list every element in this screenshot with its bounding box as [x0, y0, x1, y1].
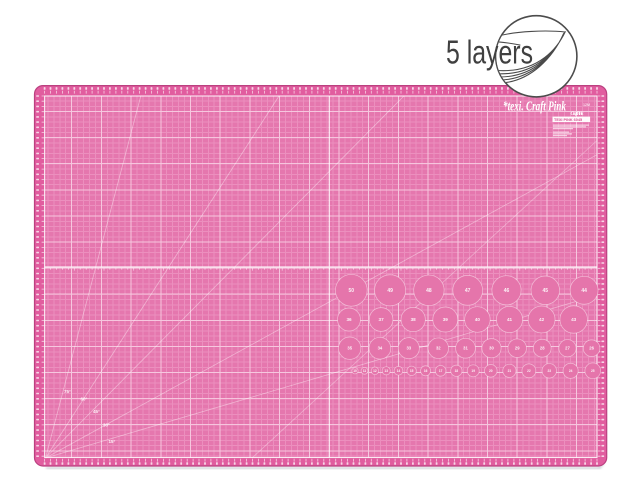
svg-text:27: 27 [565, 346, 570, 351]
svg-text:30°: 30° [103, 423, 110, 428]
svg-text:39: 39 [443, 317, 449, 322]
svg-text:26: 26 [589, 346, 594, 351]
svg-text:34: 34 [378, 346, 383, 351]
svg-text:20: 20 [489, 369, 493, 373]
svg-text:14: 14 [397, 369, 401, 373]
svg-text:TEXI PINK 6045: TEXI PINK 6045 [554, 118, 582, 122]
svg-text:48: 48 [426, 288, 432, 294]
svg-text:41: 41 [507, 317, 513, 322]
svg-text:37: 37 [379, 317, 385, 322]
svg-text:50: 50 [349, 288, 355, 294]
svg-text:49: 49 [387, 288, 393, 294]
svg-text:44: 44 [581, 288, 587, 294]
svg-text:33: 33 [406, 346, 411, 351]
svg-text:Craft Pink: Craft Pink [571, 112, 585, 117]
svg-text:18: 18 [455, 369, 459, 373]
svg-text:45°: 45° [93, 409, 100, 414]
svg-text:12M: 12M [583, 103, 590, 107]
svg-text:30: 30 [489, 346, 494, 351]
svg-text:23: 23 [548, 369, 552, 373]
svg-text:28: 28 [540, 346, 545, 351]
svg-text:16: 16 [424, 369, 428, 373]
svg-text:40: 40 [475, 317, 481, 322]
svg-text:17: 17 [439, 369, 443, 373]
svg-text:5 layers: 5 layers [446, 34, 533, 71]
svg-text:*texi. Craft Pink: *texi. Craft Pink [503, 100, 566, 115]
svg-text:13: 13 [384, 369, 388, 373]
svg-text:36: 36 [346, 317, 352, 322]
svg-text:32: 32 [436, 346, 441, 351]
svg-text:75°: 75° [64, 389, 71, 394]
svg-text:25: 25 [591, 369, 595, 373]
svg-text:29: 29 [515, 346, 520, 351]
svg-text:38: 38 [411, 317, 417, 322]
svg-text:15°: 15° [109, 439, 116, 444]
svg-text:24: 24 [569, 369, 573, 373]
svg-text:31: 31 [463, 346, 468, 351]
svg-text:42: 42 [539, 317, 545, 322]
svg-text:15: 15 [410, 369, 414, 373]
svg-text:45: 45 [543, 288, 549, 294]
svg-text:35: 35 [347, 346, 352, 351]
svg-text:60°: 60° [81, 397, 88, 402]
svg-text:43: 43 [571, 317, 577, 322]
svg-text:21: 21 [508, 369, 512, 373]
svg-text:47: 47 [465, 288, 471, 294]
svg-text:22: 22 [527, 369, 531, 373]
svg-text:46: 46 [504, 288, 510, 294]
svg-text:11: 11 [363, 369, 367, 373]
svg-text:10: 10 [353, 369, 357, 373]
svg-text:19: 19 [471, 369, 475, 373]
svg-text:12: 12 [373, 369, 377, 373]
